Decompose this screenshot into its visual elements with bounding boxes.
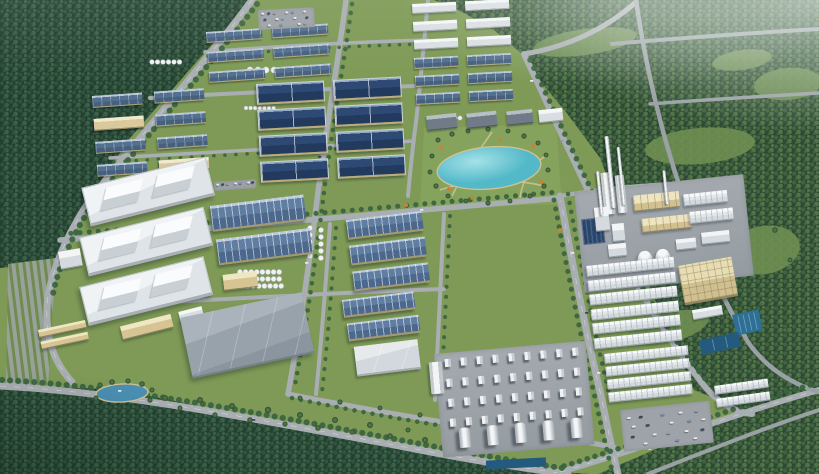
roof-navy	[333, 76, 402, 101]
car	[304, 22, 307, 24]
car	[632, 425, 636, 427]
car	[239, 182, 242, 184]
car	[247, 181, 250, 183]
big-silo	[570, 417, 583, 438]
shed-blue-sm	[415, 74, 460, 87]
tiny-tower	[478, 376, 485, 384]
shed-blue-sm	[95, 138, 146, 153]
big-silo	[459, 427, 472, 448]
shed-blue-sm	[206, 28, 263, 43]
tiny-tower	[556, 349, 563, 357]
shed-blue-sm	[275, 63, 332, 78]
roof-navy	[260, 158, 329, 183]
roof-navy	[257, 106, 326, 131]
car	[268, 24, 271, 26]
car	[267, 12, 270, 14]
shed-white	[412, 2, 456, 14]
tiny-tower	[476, 356, 483, 364]
shed-gray-dark	[506, 109, 533, 126]
shed-white	[692, 305, 723, 320]
shed-blue-sm	[416, 92, 461, 105]
shed-blue-sm	[467, 53, 512, 66]
tiny-tower	[544, 390, 551, 398]
tiny-tower	[498, 414, 505, 422]
car	[675, 439, 679, 441]
car	[661, 413, 665, 415]
roof-navy	[334, 102, 403, 127]
tiny-tower	[450, 418, 457, 426]
car	[221, 183, 224, 185]
tiny-tower	[462, 377, 469, 385]
tiny-tower	[482, 416, 489, 424]
big-silo	[514, 422, 527, 443]
car	[291, 11, 294, 13]
shed-blue-sm	[155, 111, 206, 126]
car	[639, 416, 643, 418]
bldg-tan	[120, 314, 174, 340]
ware-steel	[342, 291, 416, 318]
industrial-park-scene	[0, 0, 819, 474]
tiny-tower	[560, 389, 567, 397]
shed-gray-dark	[426, 113, 457, 131]
tiny-tower	[545, 410, 552, 418]
tiny-tower	[526, 372, 533, 380]
car	[275, 18, 278, 20]
shed-white	[538, 108, 563, 123]
bldg-white-tall	[429, 361, 445, 394]
tiny-tower	[540, 350, 547, 358]
shed-blue-sm	[468, 71, 513, 84]
tiny-tower	[528, 391, 535, 399]
tiny-tower	[561, 409, 568, 417]
bldg-white-sm	[676, 237, 697, 250]
shed-white	[414, 38, 458, 50]
tiny-tower	[512, 393, 519, 401]
ware-steel	[347, 315, 421, 342]
car	[281, 18, 284, 20]
tiny-tower	[446, 379, 453, 387]
tiny-tower	[513, 413, 520, 421]
shed-white	[413, 20, 457, 32]
ware-steel	[349, 237, 427, 266]
tiny-tower	[524, 352, 531, 360]
car	[700, 428, 704, 430]
car	[273, 12, 276, 14]
tiny-tower	[529, 411, 536, 419]
car	[234, 182, 237, 184]
roof-navy	[256, 80, 325, 105]
shed-blue-sm	[154, 88, 205, 103]
shed-blue-sm	[469, 89, 514, 102]
car	[694, 410, 698, 412]
tiny-tower	[575, 387, 582, 395]
car	[285, 11, 288, 13]
shed-white	[467, 35, 511, 47]
tiny-tower	[492, 354, 499, 362]
tiny-tower	[558, 369, 565, 377]
bldg-tan	[223, 271, 259, 291]
roof-navy	[337, 154, 406, 179]
tiny-tower	[510, 373, 517, 381]
shed-white	[465, 0, 509, 11]
big-silo	[486, 425, 499, 446]
tiny-tower	[496, 394, 503, 402]
shed-blue-sm	[207, 48, 264, 63]
shed-gray-dark	[466, 111, 497, 129]
shed-blue-sm	[273, 43, 330, 58]
shed-blue-sm	[209, 68, 266, 83]
bldg-tan-grid	[678, 257, 738, 306]
tiny-tower	[444, 359, 451, 367]
shed-blue-sm	[92, 93, 143, 108]
shed-white	[466, 17, 510, 29]
car	[627, 417, 631, 419]
tiny-tower	[460, 357, 467, 365]
big-silo	[542, 420, 555, 441]
tiny-tower	[572, 347, 579, 355]
car	[261, 13, 264, 15]
car	[679, 412, 683, 414]
ware-steel	[352, 262, 430, 291]
bldg-white-sm	[58, 248, 83, 270]
car	[631, 436, 635, 438]
shed-white-ribbed	[716, 391, 771, 407]
roof-navy	[259, 132, 328, 157]
car	[263, 19, 266, 21]
car	[216, 184, 219, 186]
tiny-tower	[542, 370, 549, 378]
car	[280, 24, 283, 26]
tiny-tower	[508, 353, 515, 361]
car	[303, 10, 306, 12]
ware-steel	[216, 228, 312, 265]
car	[670, 422, 674, 424]
ware-flat-gray	[180, 292, 314, 378]
tiny-tower	[464, 397, 471, 405]
bldg-white-sm	[612, 223, 626, 242]
buildings-layer	[0, 0, 819, 474]
roof-navy	[336, 128, 405, 153]
car	[226, 183, 229, 185]
tiny-tower	[577, 407, 584, 415]
shed-blue-sm	[414, 56, 459, 69]
car	[653, 433, 657, 435]
car	[684, 430, 688, 432]
tiny-tower	[448, 398, 455, 406]
car	[644, 442, 648, 444]
ware-steel	[210, 195, 306, 232]
car	[251, 181, 254, 183]
tiny-tower	[494, 374, 501, 382]
car	[667, 432, 671, 434]
bldg-white-sm	[608, 243, 627, 258]
shed-blue-sm	[157, 134, 208, 149]
car	[293, 17, 296, 19]
tiny-tower	[466, 417, 473, 425]
car	[305, 16, 308, 18]
ware-flat	[354, 339, 421, 377]
ware-steel	[346, 211, 424, 240]
shed-tan	[94, 115, 145, 130]
tiny-tower	[574, 367, 581, 375]
tiny-tower	[480, 396, 487, 404]
car	[646, 424, 650, 426]
car	[701, 418, 705, 420]
car	[298, 23, 301, 25]
car	[693, 437, 697, 439]
car	[687, 420, 691, 422]
